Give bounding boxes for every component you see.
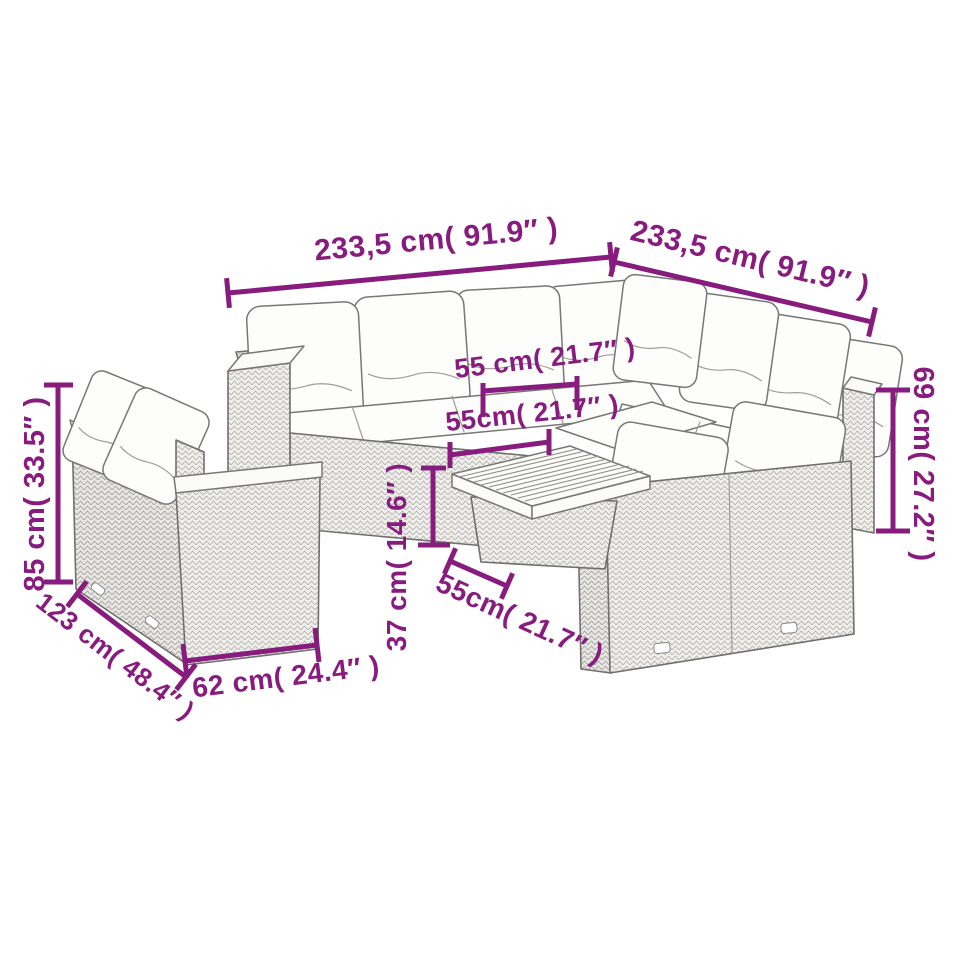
dimension-label: 37 cm( 14.6″ ) [381, 463, 412, 652]
dimension-label: 85 cm( 33.5″ ) [19, 397, 51, 592]
sofa-foot [654, 642, 671, 654]
back-cushion-shape [612, 273, 708, 388]
dimension-label: 233,5 cm( 91.9″ ) [313, 212, 560, 268]
back-cushion [612, 273, 708, 388]
corner-sofa-front-section [577, 400, 854, 673]
diagram-canvas: 233,5 cm( 91.9″ ) 233,5 cm( 91.9″ ) 55 c… [0, 0, 955, 955]
dimension-label: 69 cm( 27.2″ ) [907, 367, 939, 562]
back-cushion [353, 290, 471, 413]
side-sofa-front-panel [176, 477, 320, 665]
back-cushion-shape [353, 290, 471, 413]
dimension-back-height-left: 85 cm( 33.5″ ) [19, 385, 73, 592]
foot-shape [654, 642, 671, 654]
sofa-foot [781, 622, 798, 634]
product-dimension-diagram: 233,5 cm( 91.9″ ) 233,5 cm( 91.9″ ) 55 c… [0, 0, 955, 955]
foot-shape [781, 622, 798, 634]
